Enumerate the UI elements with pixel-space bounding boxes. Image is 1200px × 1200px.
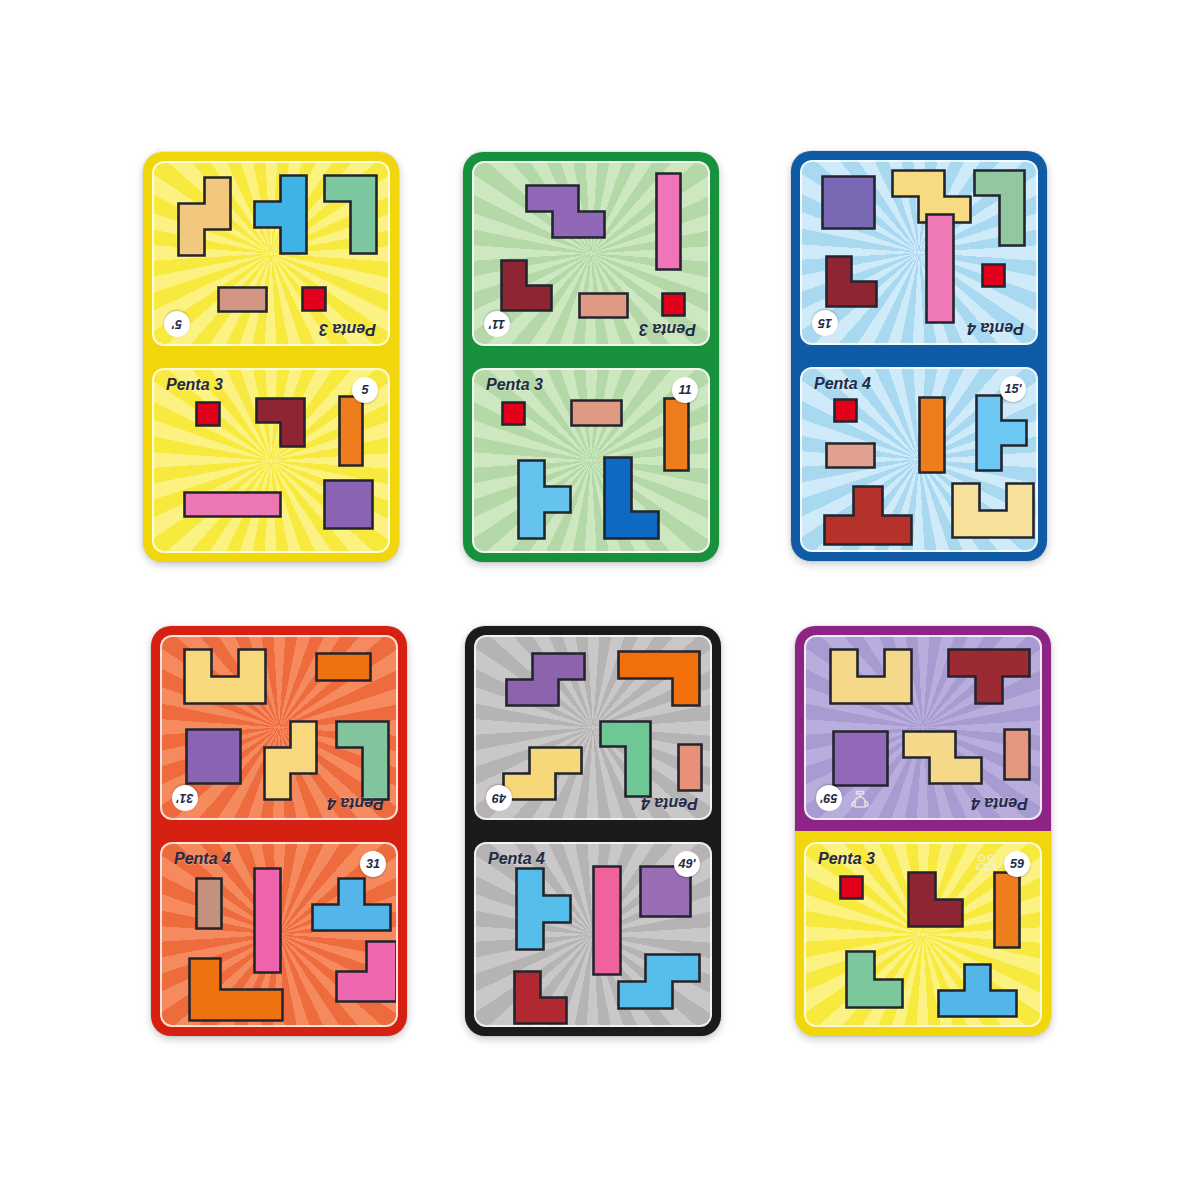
card-half-top: Penta 449: [474, 635, 712, 820]
puzzle-piece-sq2: [322, 478, 375, 531]
time-badge: 5: [352, 377, 378, 403]
puzzle-piece-sq1: [300, 285, 328, 313]
puzzle-piece-sq1: [500, 400, 527, 427]
puzzle-piece-l_dr: [499, 258, 554, 313]
penta-label: Penta 3: [639, 320, 696, 338]
card-half-bottom: Penta 431: [160, 842, 398, 1027]
puzzle-card-green-11: Penta 311'Penta 311: [463, 152, 719, 562]
time-badge: 31': [172, 785, 198, 811]
penta-label: Penta 3: [818, 850, 875, 868]
puzzle-piece-z_h: [504, 651, 587, 708]
card-half-top: Penta 35': [152, 161, 390, 346]
time-badge: 11: [672, 377, 698, 403]
puzzle-piece-sq2: [831, 729, 890, 788]
puzzle-piece-t_d: [946, 647, 1032, 706]
puzzle-piece-r2v: [194, 876, 224, 931]
puzzle-piece-r4h: [182, 490, 283, 519]
puzzle-piece-r3v: [337, 394, 365, 468]
trophy-icon: [848, 788, 872, 810]
puzzle-piece-l_dr: [512, 969, 569, 1026]
puzzle-piece-l_dr: [906, 870, 965, 929]
time-badge: 15: [812, 310, 838, 336]
puzzle-piece-s_h: [524, 183, 607, 240]
puzzle-card-black-49: Penta 449Penta 449': [465, 626, 721, 1036]
penta-label: Penta 4: [967, 319, 1024, 337]
puzzle-piece-z_h: [501, 745, 584, 802]
card-half-bottom: Penta 449': [474, 842, 712, 1027]
penta-label: Penta 3: [486, 376, 543, 394]
card-half-top: Penta 459': [804, 635, 1042, 820]
puzzle-piece-s_v: [176, 175, 233, 258]
time-badge: 15': [1000, 376, 1026, 402]
card-half-bottom: Penta 311: [472, 368, 710, 553]
puzzle-piece-t_u: [936, 962, 1019, 1019]
puzzle-piece-r2h: [569, 398, 624, 428]
puzzle-piece-r2v: [1002, 727, 1032, 782]
puzzle-piece-l3r: [616, 649, 702, 708]
puzzle-piece-r3v: [662, 396, 691, 473]
puzzle-piece-u5: [950, 481, 1036, 540]
puzzle-piece-t_u: [310, 876, 393, 933]
puzzle-card-yellow-5: Penta 35'Penta 35: [143, 152, 399, 562]
time-badge: 49: [486, 785, 512, 811]
puzzle-piece-u5: [182, 647, 268, 706]
penta-label: Penta 4: [641, 794, 698, 812]
penta-label: Penta 4: [327, 794, 384, 812]
penta-label: Penta 3: [319, 320, 376, 338]
card-half-bottom: Penta 35: [152, 368, 390, 553]
puzzle-piece-z_h: [616, 952, 702, 1011]
puzzle-piece-s_v: [262, 719, 319, 802]
time-badge: 59: [1004, 851, 1030, 877]
puzzle-piece-r2h: [314, 651, 373, 683]
puzzle-piece-r3v: [917, 395, 947, 475]
puzzle-piece-v3: [187, 956, 285, 1023]
puzzle-piece-r2h: [824, 441, 877, 470]
time-badge: 11': [484, 311, 510, 337]
puzzle-card-purple-59: Penta 459'Penta 359: [795, 626, 1051, 1036]
puzzle-piece-sq1: [838, 874, 865, 901]
puzzle-piece-t_u: [822, 484, 914, 547]
penta-label: Penta 4: [488, 850, 545, 868]
puzzle-piece-l_dl: [334, 939, 398, 1004]
puzzle-piece-r4v: [654, 171, 683, 272]
card-half-top: Penta 415: [800, 160, 1038, 345]
penta-label: Penta 4: [814, 375, 871, 393]
puzzle-piece-s_h: [901, 729, 984, 786]
time-badge: 5': [164, 311, 190, 337]
puzzle-piece-sq2: [184, 727, 243, 786]
puzzle-piece-j4: [598, 719, 653, 799]
card-half-top: Penta 431': [160, 635, 398, 820]
puzzle-piece-sq1: [660, 291, 687, 318]
two-players-icon: [974, 852, 998, 874]
puzzle-piece-sq1: [980, 262, 1007, 289]
puzzle-piece-j4: [334, 719, 391, 802]
card-half-top: Penta 311': [472, 161, 710, 346]
puzzle-piece-l_dr: [844, 949, 905, 1010]
puzzle-piece-sq1: [194, 400, 222, 428]
puzzle-piece-r2h: [216, 285, 269, 314]
penta-label: Penta 4: [174, 850, 231, 868]
time-badge: 31: [360, 851, 386, 877]
time-badge: 49': [674, 851, 700, 877]
puzzle-piece-t_r: [516, 458, 573, 541]
puzzle-piece-r2v: [676, 742, 704, 793]
puzzle-piece-l_tr: [254, 396, 307, 449]
puzzle-piece-t_r: [974, 393, 1029, 473]
puzzle-piece-l4: [602, 455, 661, 541]
time-badge: 59': [816, 785, 842, 811]
penta-label: Penta 3: [166, 376, 223, 394]
card-half-bottom: Penta 359: [804, 842, 1042, 1027]
card-half-bottom: Penta 415': [800, 367, 1038, 552]
puzzle-piece-sq2: [820, 174, 877, 231]
product-image: { "page": { "background": "#ffffff" }, "…: [0, 0, 1200, 1200]
puzzle-card-blue-15: Penta 415Penta 415': [791, 151, 1047, 561]
puzzle-piece-l_dr: [824, 254, 879, 309]
puzzle-piece-sq1: [832, 397, 859, 424]
puzzle-piece-r2h: [577, 291, 630, 320]
puzzle-card-red-31: Penta 431'Penta 431: [151, 626, 407, 1036]
puzzle-piece-u5: [828, 647, 914, 706]
puzzle-piece-r4v: [924, 212, 956, 325]
puzzle-piece-r3v: [992, 870, 1022, 950]
penta-label: Penta 4: [971, 794, 1028, 812]
puzzle-piece-t_l: [252, 173, 309, 256]
puzzle-piece-j4: [322, 173, 379, 256]
puzzle-piece-t_r: [514, 866, 573, 952]
puzzle-piece-j4: [972, 168, 1027, 248]
